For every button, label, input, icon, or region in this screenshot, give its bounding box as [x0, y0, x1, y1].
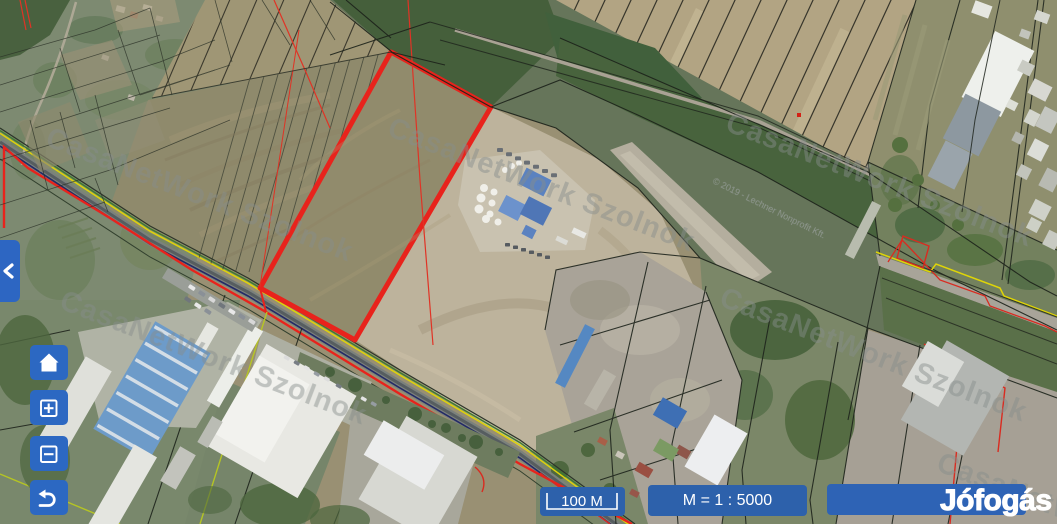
svg-text:100 M: 100 M: [561, 493, 603, 510]
